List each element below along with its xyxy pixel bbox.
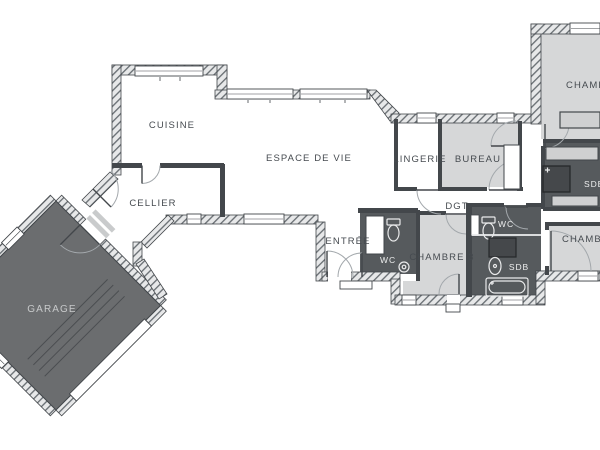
passage-steps [86, 209, 115, 238]
label-espace-de-vie: ESPACE DE VIE [266, 153, 352, 164]
chambre3-door-step [446, 304, 460, 312]
label-sdb: SDB [509, 262, 529, 272]
bureau-closet [504, 145, 520, 189]
sdb-droite-vanity [546, 147, 598, 160]
sdb-vanity [489, 238, 516, 257]
label-bureau: BUREAU [455, 154, 501, 165]
label-cuisine: CUISINE [149, 120, 195, 131]
front-door-gap [328, 271, 351, 282]
label-chambre-3: CHAMBRE 3 [409, 252, 474, 263]
chambre3-door-gap [447, 295, 460, 305]
room-chambre-bas-floor [549, 226, 600, 271]
label-cellier: CELLIER [129, 198, 176, 209]
label-chambre-bas: CHAMBRE [562, 234, 600, 245]
sdb-niche [471, 215, 479, 236]
entree-closet [366, 216, 384, 254]
label-dgt: DGT [445, 201, 468, 212]
floorplan-drawing: CUISINE CELLIER GARAGE ESPACE DE VIE ENT… [0, 0, 600, 450]
sdb-droite-vanity2 [552, 196, 598, 206]
floorplan-canvas: CUISINE CELLIER GARAGE ESPACE DE VIE ENT… [0, 0, 600, 450]
label-wc-entree: WC [380, 255, 396, 265]
label-lingerie: LINGERIE [393, 154, 446, 165]
label-chambre-haut: CHAMBRE [566, 80, 600, 91]
label-wc-bain: WC [498, 219, 514, 229]
garage-block [0, 179, 182, 422]
front-door-step [340, 281, 372, 289]
label-entree: ENTRÉE [325, 236, 370, 247]
sdb-divider [472, 234, 541, 236]
label-garage: GARAGE [27, 304, 76, 315]
label-sdb-droite: SDB [584, 179, 600, 189]
chambre-haut-bed [560, 112, 600, 128]
